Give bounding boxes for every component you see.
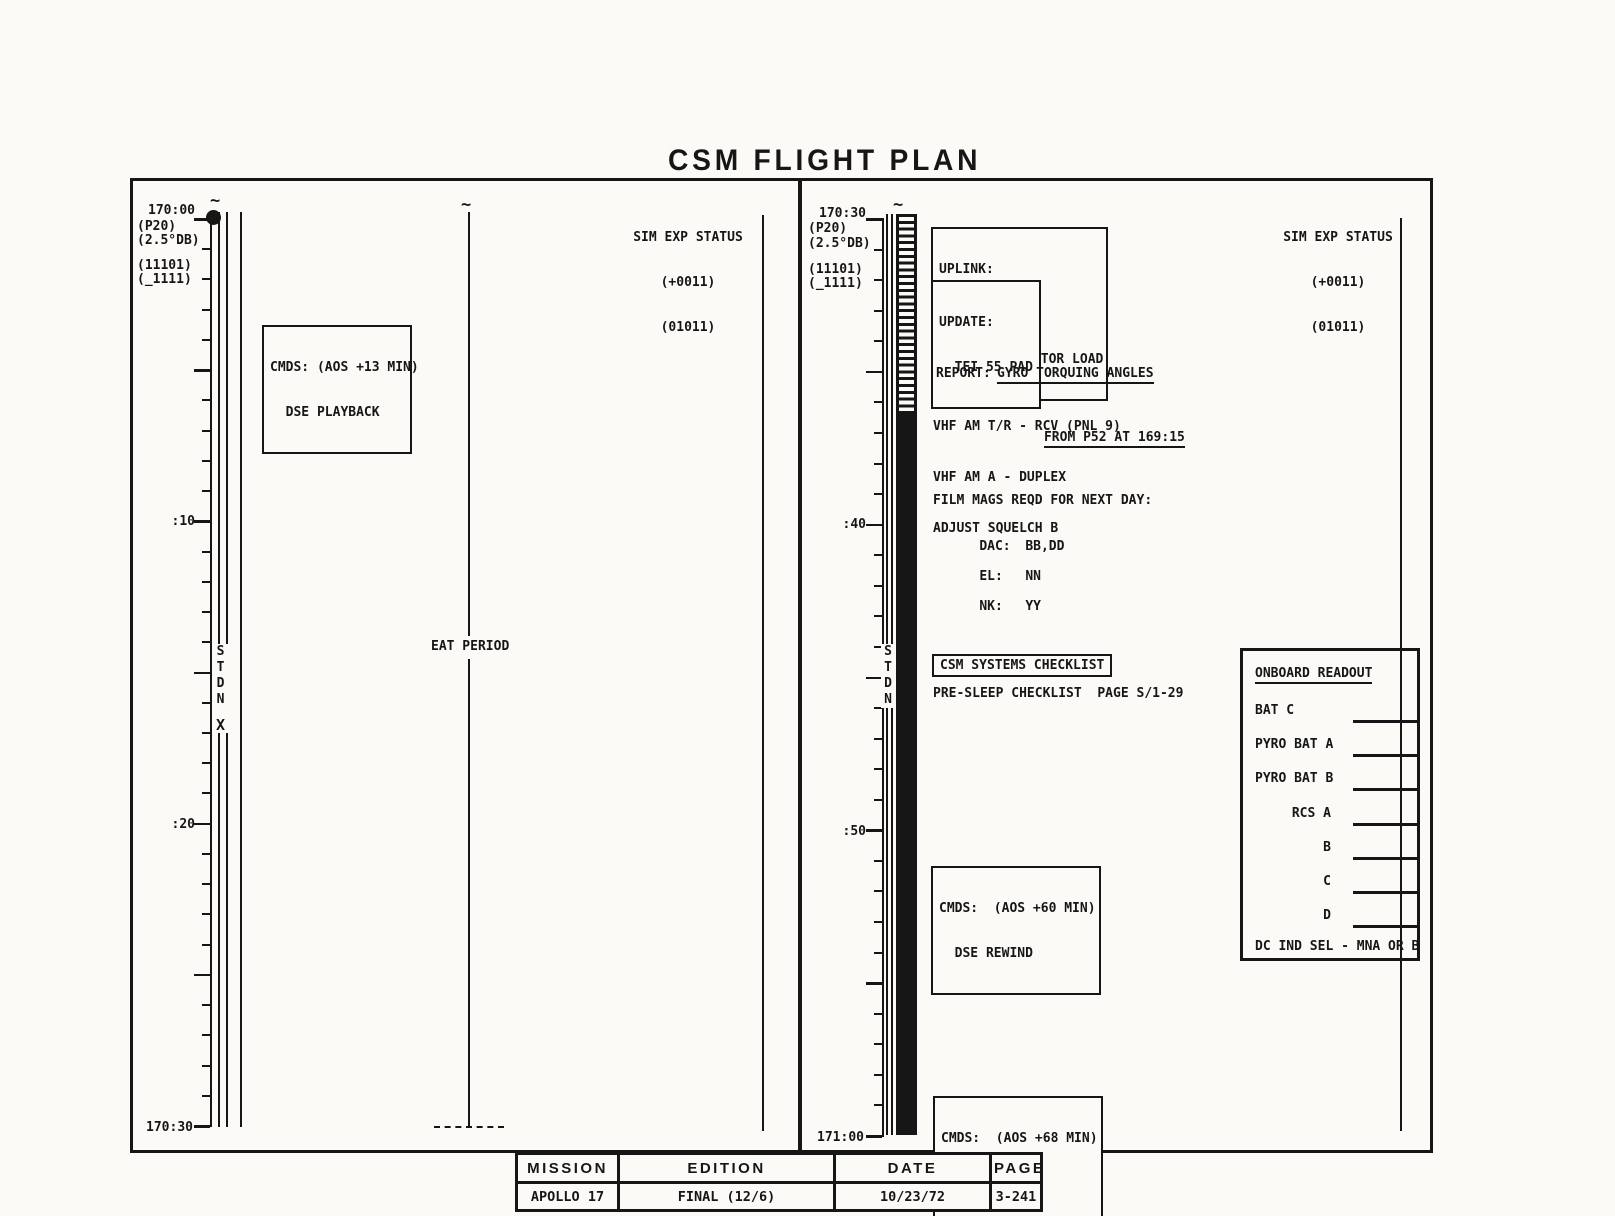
cmds-line: DSE PLAYBACK <box>270 405 404 420</box>
readout-blank-line <box>1353 891 1417 894</box>
minute-tick <box>202 430 210 432</box>
onboard-readout-box: ONBOARD READOUT BAT C PYRO BAT A PYRO BA… <box>1240 648 1420 961</box>
readout-row-label: C <box>1255 874 1331 889</box>
cmds-line: CMDS: (AOS +60 MIN) <box>939 901 1093 916</box>
minute-tick <box>874 768 882 770</box>
sim-exp-status: SIM EXP STATUS (+0011) (01011) <box>1268 200 1408 365</box>
film-mag-label: DAC: <box>979 539 1025 554</box>
readout-row-label: PYRO BAT A <box>1255 737 1333 752</box>
minute-tick <box>874 1013 882 1015</box>
major-tick <box>194 823 210 826</box>
minute-tick <box>874 585 882 587</box>
readout-blank-line <box>1353 754 1417 757</box>
minute-tick <box>874 432 882 434</box>
table-value-row: APOLLO 17 FINAL (12/6) 10/23/72 3-241 <box>518 1181 1040 1209</box>
header-page: PAGE <box>989 1155 1040 1181</box>
comm-line: VHF AM T/R - RCV (PNL 9) <box>933 418 1121 435</box>
value-date: 10/23/72 <box>833 1184 989 1209</box>
sim-exp-line: (01011) <box>1268 320 1408 335</box>
config-label: (2.5°DB) <box>137 233 200 248</box>
minute-tick <box>874 340 882 342</box>
minute-tick <box>874 799 882 801</box>
sim-exp-line: SIM EXP STATUS <box>1268 230 1408 245</box>
minute-tick <box>202 641 210 643</box>
major-tick <box>194 974 210 977</box>
cmds-line: CMDS: (AOS +68 MIN) <box>941 1131 1095 1146</box>
readout-row-label: PYRO BAT B <box>1255 771 1333 786</box>
sim-exp-status-line <box>762 215 764 1131</box>
stdn-letter: S <box>884 644 892 660</box>
orbit-marker-icon <box>206 210 221 225</box>
config-label: (_1111) <box>808 276 863 291</box>
time-label: 170:30 <box>806 206 866 221</box>
minute-tick <box>202 581 210 583</box>
film-mag-value: NN <box>1025 569 1041 584</box>
readout-footer: DC IND SEL - MNA OR B <box>1255 939 1419 954</box>
minute-tick <box>874 1043 882 1045</box>
major-tick <box>866 829 882 832</box>
minute-tick <box>202 339 210 341</box>
eat-period-label: EAT PERIOD <box>431 639 509 654</box>
stdn-letter: D <box>217 676 225 692</box>
film-mag-row: NK:YY <box>948 584 1041 629</box>
major-tick <box>194 1125 210 1128</box>
minute-tick <box>202 792 210 794</box>
minute-tick <box>202 883 210 885</box>
minute-tick <box>202 278 210 280</box>
major-tick <box>866 982 882 985</box>
coverage-bar-hatched <box>896 214 917 414</box>
minute-tick <box>874 952 882 954</box>
header-edition: EDITION <box>617 1155 833 1181</box>
readout-row-label: B <box>1255 840 1331 855</box>
time-label: 170:30 <box>133 1120 193 1135</box>
squiggle-icon: ~ <box>461 200 471 210</box>
onboard-readout-title: ONBOARD READOUT <box>1255 666 1372 684</box>
readout-blank-line <box>1353 720 1417 723</box>
page-title: CSM FLIGHT PLAN <box>668 144 981 178</box>
minute-tick <box>202 1065 210 1067</box>
cmds-playback-box: CMDS: (AOS +13 MIN) DSE PLAYBACK <box>262 325 412 454</box>
value-page: 3-241 <box>989 1184 1040 1209</box>
minute-tick <box>202 762 210 764</box>
header-date: DATE <box>833 1155 989 1181</box>
minute-tick <box>202 248 210 250</box>
config-label: (2.5°DB) <box>808 236 871 251</box>
minute-tick <box>874 401 882 403</box>
readout-blank-line <box>1353 857 1417 860</box>
minute-tick <box>202 732 210 734</box>
minute-tick <box>202 490 210 492</box>
minute-tick <box>874 249 882 251</box>
minute-tick <box>874 279 882 281</box>
minute-tick <box>202 913 210 915</box>
config-label: (P20) <box>808 221 847 236</box>
stdn-letter: S <box>217 644 225 660</box>
readout-row-label: D <box>1255 908 1331 923</box>
readout-row-label: BAT C <box>1255 703 1294 718</box>
comm-line: VHF AM A - DUPLEX <box>933 469 1121 486</box>
readout-blank-line <box>1353 823 1417 826</box>
uplink-line: UPLINK: <box>939 262 1100 277</box>
pre-sleep-checklist-line: PRE-SLEEP CHECKLIST PAGE S/1-29 <box>933 686 1183 701</box>
major-tick <box>866 218 882 221</box>
minute-tick <box>874 615 882 617</box>
minute-tick <box>202 399 210 401</box>
config-label: (11101) <box>137 258 192 273</box>
major-tick <box>194 672 210 675</box>
stdn-letter: N <box>884 692 892 708</box>
flight-plan-page: CSM FLIGHT PLAN ~ 170:00 (P20) (2.5°DB) … <box>0 0 1615 1216</box>
time-label: 171:00 <box>798 1130 864 1145</box>
sim-exp-status: SIM EXP STATUS (+0011) (01011) <box>618 200 758 365</box>
stdn-letter: N <box>217 692 225 708</box>
minute-tick <box>202 551 210 553</box>
minute-tick <box>202 611 210 613</box>
table-header-row: MISSION EDITION DATE PAGE <box>518 1155 1040 1181</box>
readout-blank-line <box>1353 925 1417 928</box>
left-time-ruler <box>196 218 212 1127</box>
minute-tick <box>202 944 210 946</box>
film-mag-label: EL: <box>979 569 1025 584</box>
readout-blank-line <box>1353 788 1417 791</box>
minute-tick <box>874 463 882 465</box>
readout-row-label: RCS A <box>1255 806 1331 821</box>
minute-tick <box>874 860 882 862</box>
minute-tick <box>202 1004 210 1006</box>
film-mag-value: YY <box>1025 599 1041 614</box>
minute-tick <box>874 1074 882 1076</box>
header-mission: MISSION <box>518 1155 617 1181</box>
major-tick <box>866 524 882 527</box>
cmds-line: DSE REWIND <box>939 946 1093 961</box>
coverage-bar-solid <box>896 414 917 1135</box>
minute-tick <box>202 702 210 704</box>
stdn-station-marker: S T D N <box>881 644 895 708</box>
value-edition: FINAL (12/6) <box>617 1184 833 1209</box>
config-label: (P20) <box>137 219 176 234</box>
sim-exp-line: (+0011) <box>618 275 758 290</box>
major-tick <box>194 520 210 523</box>
major-tick <box>866 677 882 680</box>
squiggle-icon: ~ <box>893 200 903 210</box>
minute-tick <box>874 738 882 740</box>
update-line: UPDATE: <box>939 315 1033 330</box>
eat-period-line <box>468 212 470 636</box>
major-tick <box>866 1135 882 1138</box>
time-label: 170:00 <box>135 203 195 218</box>
eat-period-line <box>468 659 470 1126</box>
minute-tick <box>874 493 882 495</box>
eat-period-end-bar <box>434 1126 504 1128</box>
cmds-line: CMDS: (AOS +13 MIN) <box>270 360 404 375</box>
squiggle-icon: ~ <box>210 196 220 206</box>
minute-tick <box>874 890 882 892</box>
tick-label: :40 <box>820 517 866 532</box>
sim-exp-line: SIM EXP STATUS <box>618 230 758 245</box>
minute-tick <box>874 310 882 312</box>
tick-label: :20 <box>155 817 195 832</box>
film-mag-label: NK: <box>979 599 1025 614</box>
config-label: (11101) <box>808 262 863 277</box>
minute-tick <box>202 853 210 855</box>
film-mag-value: BB,DD <box>1025 539 1064 554</box>
cmds-rewind-box: CMDS: (AOS +60 MIN) DSE REWIND <box>931 866 1101 995</box>
stdn-letter: D <box>884 676 892 692</box>
stdn-x-marker: X <box>216 717 225 733</box>
minute-tick <box>874 921 882 923</box>
config-label: (_1111) <box>137 272 192 287</box>
mission-info-table: MISSION EDITION DATE PAGE APOLLO 17 FINA… <box>515 1152 1043 1212</box>
stdn-station-marker: S T D N X <box>213 644 228 733</box>
minute-tick <box>202 1095 210 1097</box>
minute-tick <box>202 309 210 311</box>
minute-tick <box>874 554 882 556</box>
minute-tick <box>874 1104 882 1106</box>
value-mission: APOLLO 17 <box>518 1184 617 1209</box>
tick-label: :10 <box>155 514 195 529</box>
sim-exp-line: (01011) <box>618 320 758 335</box>
tick-label: :50 <box>820 824 866 839</box>
film-mags-header: FILM MAGS REQD FOR NEXT DAY: <box>933 493 1152 508</box>
stdn-letter: T <box>884 660 892 676</box>
stdn-letter: T <box>217 660 225 676</box>
major-tick <box>866 371 882 374</box>
left-track-line <box>240 212 242 1127</box>
report-subject: GYRO TORQUING ANGLES <box>997 366 1154 384</box>
major-tick <box>194 369 210 372</box>
csm-systems-checklist-box: CSM SYSTEMS CHECKLIST <box>932 654 1112 677</box>
panel-divider <box>798 178 802 1153</box>
report-label: REPORT: <box>936 366 997 384</box>
minute-tick <box>202 1034 210 1036</box>
sim-exp-line: (+0011) <box>1268 275 1408 290</box>
sim-exp-status-line <box>1400 218 1402 1131</box>
minute-tick <box>202 460 210 462</box>
